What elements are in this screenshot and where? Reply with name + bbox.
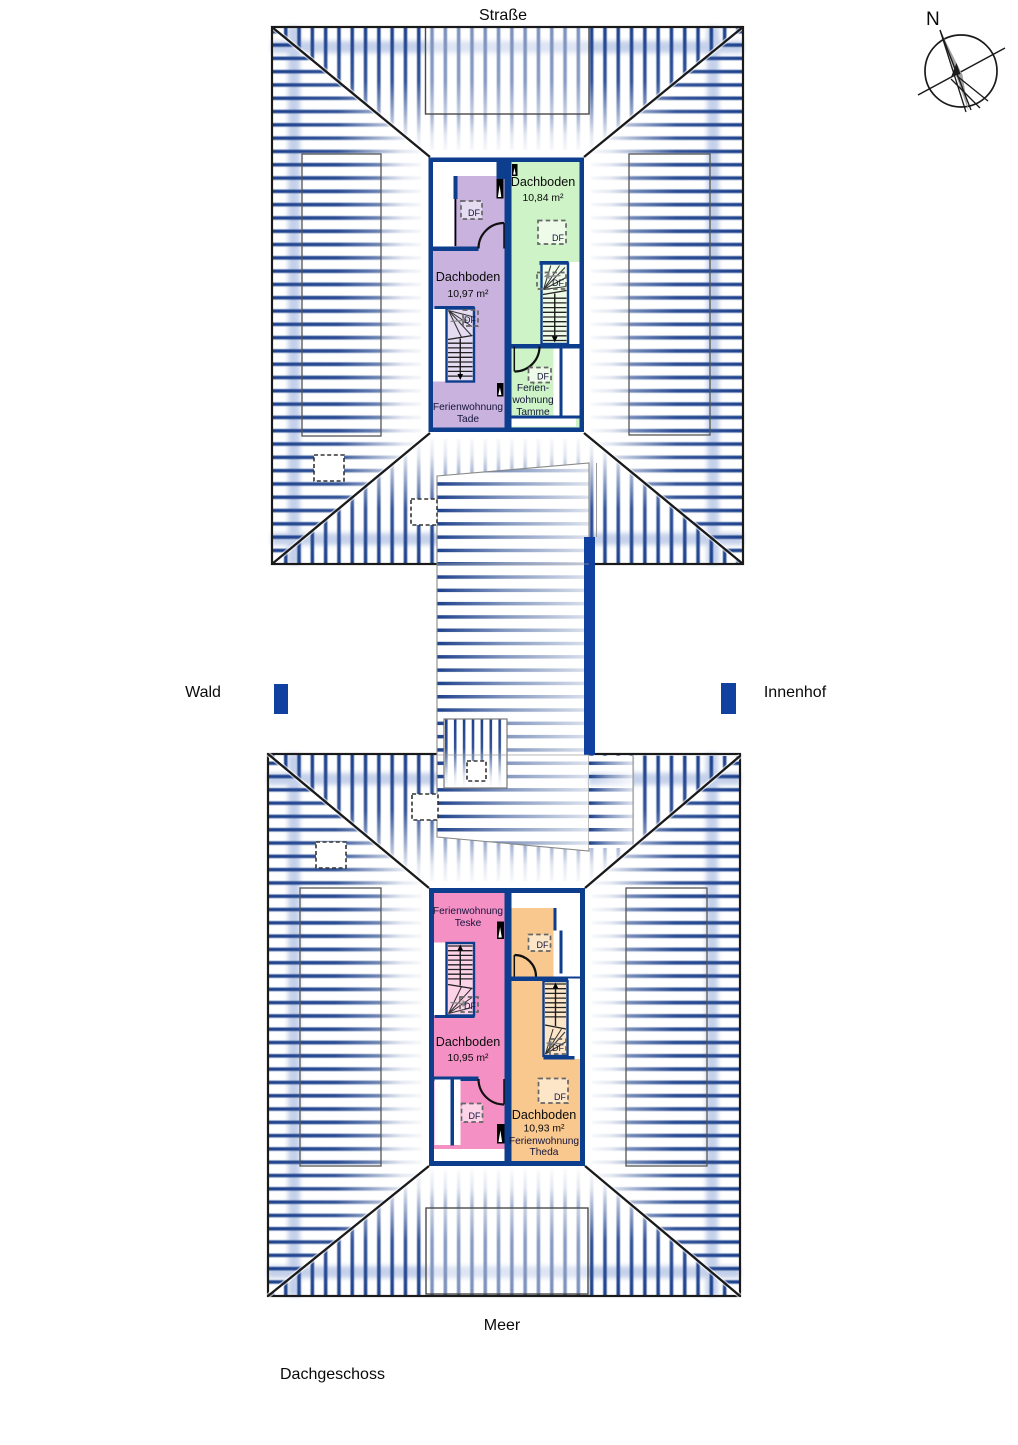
- svg-text:Ferienwohnung: Ferienwohnung: [433, 906, 504, 917]
- svg-text:Innenhof: Innenhof: [764, 684, 827, 701]
- svg-text:10,95 m²: 10,95 m²: [447, 1053, 489, 1064]
- svg-text:DF: DF: [552, 278, 564, 288]
- svg-text:10,84 m²: 10,84 m²: [522, 193, 564, 204]
- svg-text:DF: DF: [552, 233, 564, 243]
- svg-text:Teske: Teske: [455, 918, 482, 929]
- svg-text:Straße: Straße: [479, 7, 527, 24]
- svg-text:Dachboden: Dachboden: [512, 1108, 576, 1122]
- svg-text:Meer: Meer: [484, 1317, 521, 1334]
- svg-text:Theda: Theda: [530, 1147, 559, 1158]
- svg-text:Ferienwohnung: Ferienwohnung: [509, 1136, 580, 1147]
- svg-text:DF: DF: [537, 940, 549, 950]
- svg-text:10,93 m²: 10,93 m²: [523, 1124, 565, 1135]
- svg-text:10,97 m²: 10,97 m²: [447, 289, 489, 300]
- svg-text:DF: DF: [469, 1111, 481, 1121]
- svg-text:DF: DF: [554, 1092, 566, 1102]
- svg-text:Dachgeschoss: Dachgeschoss: [280, 1366, 385, 1383]
- svg-text:N: N: [926, 9, 940, 30]
- svg-text:Wald: Wald: [185, 684, 221, 701]
- svg-text:Ferienwohnung: Ferienwohnung: [433, 402, 504, 413]
- svg-text:wohnung: wohnung: [511, 395, 554, 406]
- svg-text:Dachboden: Dachboden: [436, 1035, 500, 1049]
- svg-text:Tade: Tade: [457, 414, 479, 425]
- svg-text:DF: DF: [552, 1043, 564, 1053]
- svg-text:Ferien-: Ferien-: [517, 383, 549, 394]
- svg-text:DF: DF: [468, 208, 480, 218]
- svg-text:DF: DF: [537, 372, 549, 382]
- svg-text:Dachboden: Dachboden: [436, 270, 500, 284]
- svg-text:DF: DF: [464, 1001, 476, 1011]
- svg-text:Dachboden: Dachboden: [511, 175, 575, 189]
- svg-text:DF: DF: [464, 315, 476, 325]
